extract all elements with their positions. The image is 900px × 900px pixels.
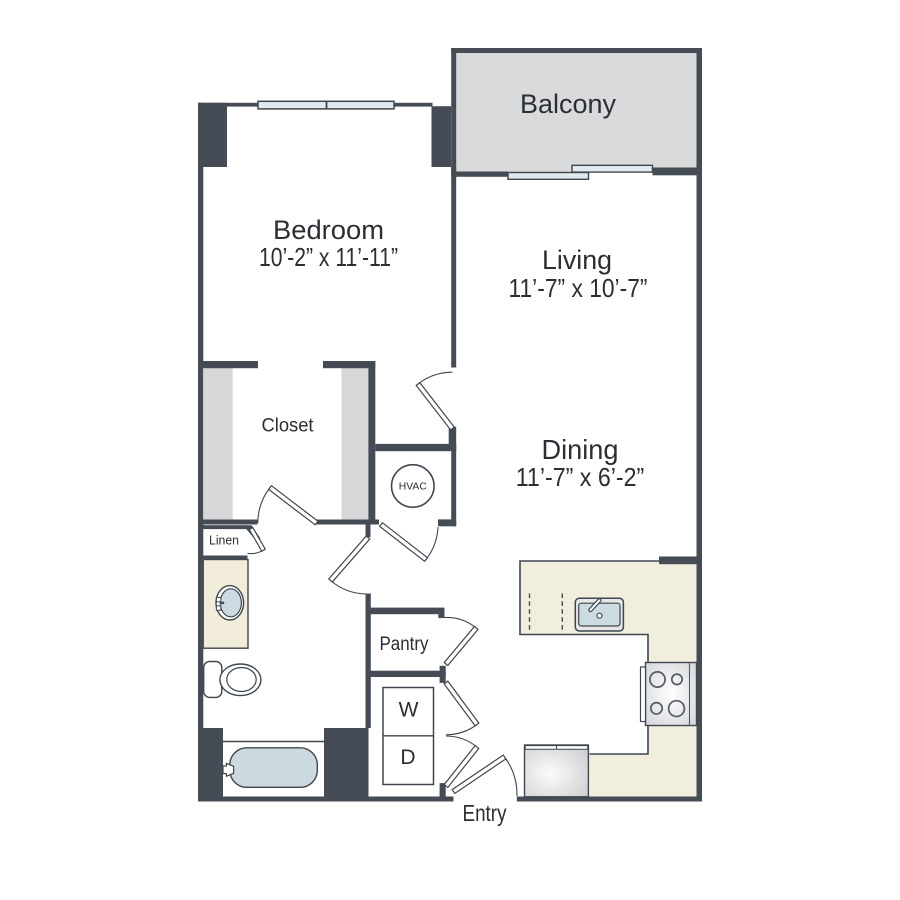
svg-text:10’-2” x 11’-11”: 10’-2” x 11’-11” bbox=[259, 242, 398, 272]
svg-text:Linen: Linen bbox=[209, 533, 239, 548]
svg-text:Dining: Dining bbox=[542, 434, 619, 465]
svg-text:Bedroom: Bedroom bbox=[273, 215, 384, 245]
svg-text:Closet: Closet bbox=[262, 416, 315, 437]
svg-text:Balcony: Balcony bbox=[520, 89, 616, 119]
svg-text:HVAC: HVAC bbox=[399, 482, 427, 493]
svg-text:W: W bbox=[399, 699, 419, 722]
svg-text:D: D bbox=[400, 746, 415, 769]
svg-text:Pantry: Pantry bbox=[380, 634, 429, 655]
svg-text:Living: Living bbox=[542, 245, 612, 275]
svg-text:11’-7” x 6’-2”: 11’-7” x 6’-2” bbox=[516, 462, 645, 492]
svg-text:11’-7” x 10’-7”: 11’-7” x 10’-7” bbox=[509, 273, 648, 303]
svg-text:Entry: Entry bbox=[463, 800, 507, 826]
